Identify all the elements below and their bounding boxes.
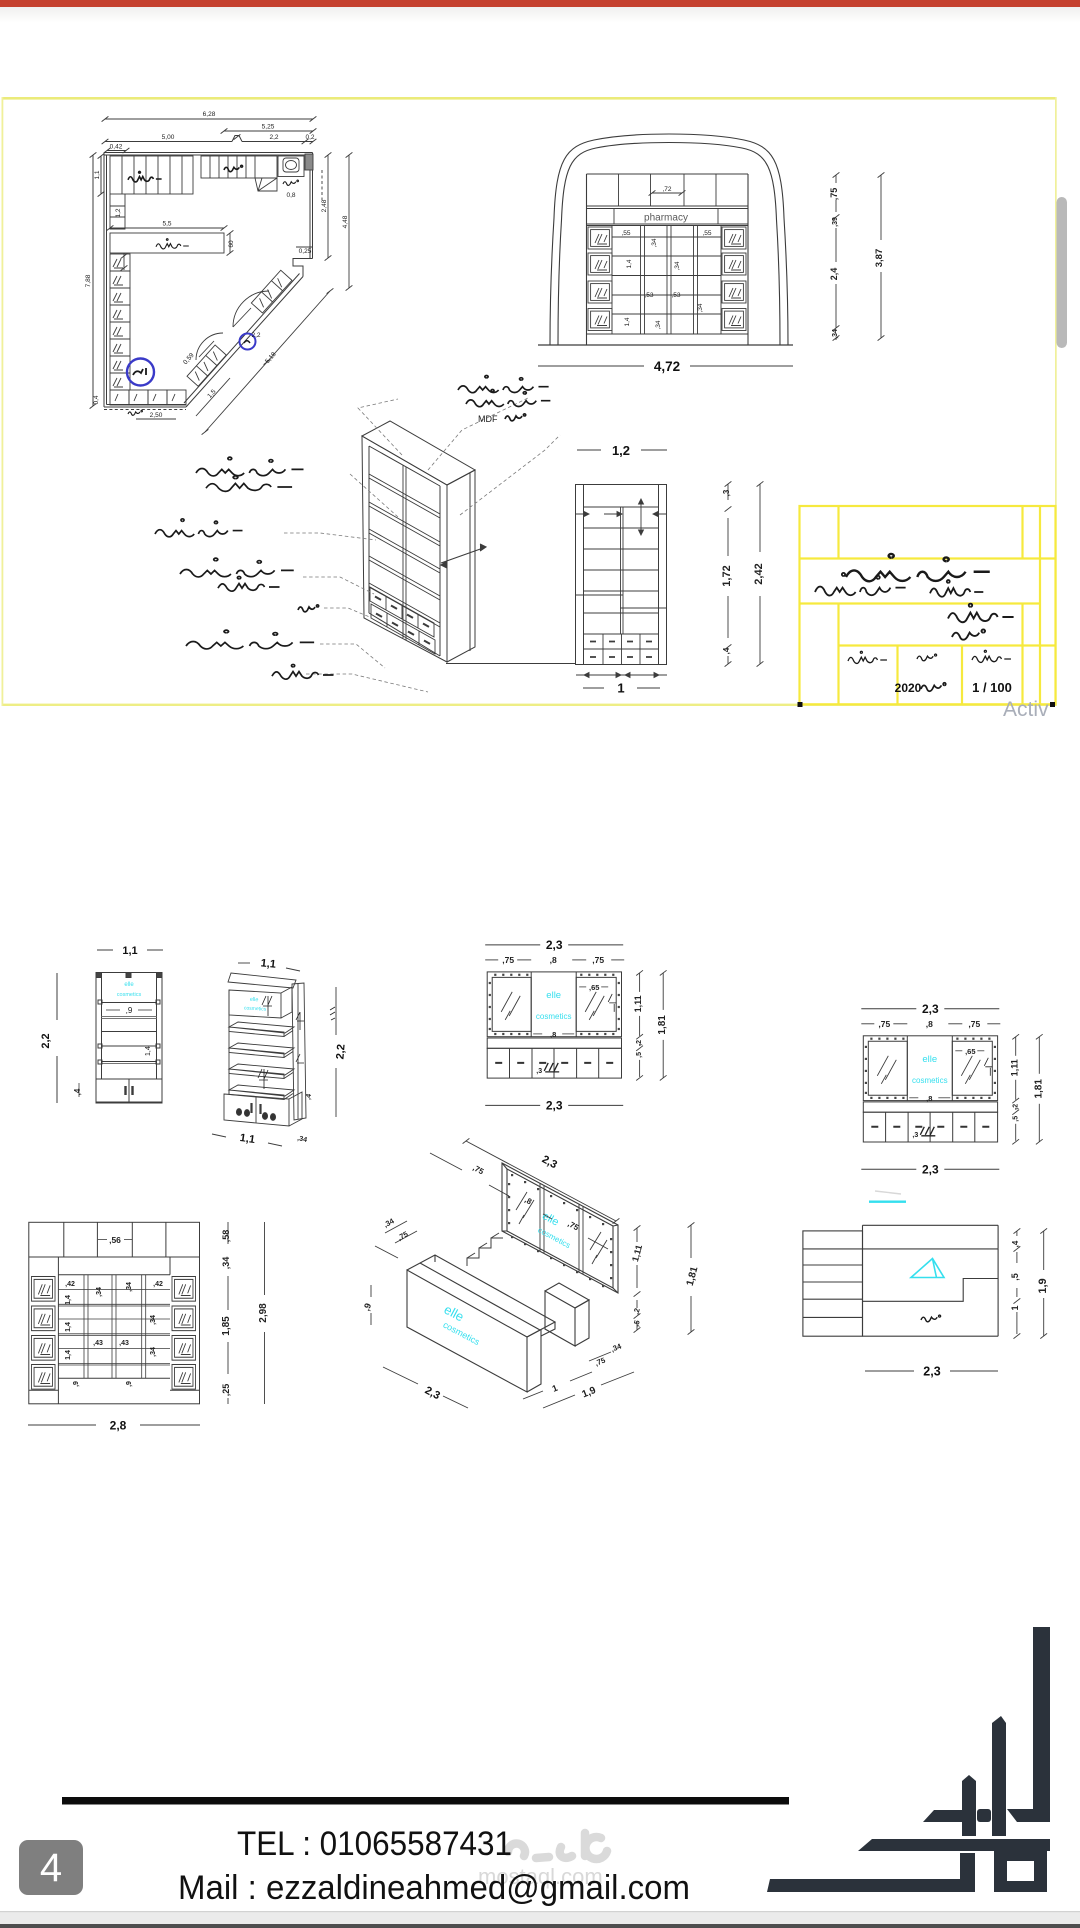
- svg-text:6,28: 6,28: [203, 111, 216, 118]
- svg-text:0,8: 0,8: [286, 192, 295, 199]
- svg-text:pharmacy: pharmacy: [644, 213, 688, 224]
- svg-text:elle: elle: [124, 982, 134, 988]
- svg-text:2,8: 2,8: [110, 1419, 127, 1433]
- svg-text:1,4: 1,4: [65, 1350, 72, 1360]
- svg-text:,9: ,9: [126, 1381, 133, 1387]
- svg-text:1,1: 1,1: [260, 957, 276, 971]
- svg-text:,9: ,9: [126, 1006, 133, 1015]
- svg-text:,34: ,34: [832, 329, 839, 339]
- svg-text:,5: ,5: [1010, 1273, 1020, 1281]
- svg-text:1,4: 1,4: [145, 1046, 152, 1056]
- svg-text:,34: ,34: [150, 1347, 157, 1357]
- svg-text:2,48: 2,48: [321, 199, 328, 212]
- svg-text:,53: ,53: [671, 292, 680, 299]
- svg-text:,3: ,3: [722, 489, 731, 496]
- svg-text:,4: ,4: [1011, 1240, 1020, 1247]
- svg-text:,43: ,43: [93, 1340, 103, 1347]
- svg-text:2,50: 2,50: [150, 412, 163, 419]
- svg-text:2,42: 2,42: [753, 563, 765, 584]
- svg-text:cosmetics: cosmetics: [244, 1005, 267, 1012]
- svg-text:1 / 100: 1 / 100: [972, 680, 1012, 695]
- svg-text:,9: ,9: [73, 1381, 80, 1387]
- svg-text:,55: ,55: [702, 230, 711, 237]
- svg-text:elle: elle: [250, 997, 259, 1003]
- svg-text:0,2: 0,2: [305, 134, 314, 141]
- svg-text:5,5: 5,5: [162, 221, 171, 228]
- svg-text:,53: ,53: [644, 292, 653, 299]
- svg-text:1: 1: [617, 681, 624, 696]
- svg-text:4,48: 4,48: [342, 215, 349, 228]
- svg-text:1,4: 1,4: [65, 1322, 72, 1332]
- svg-text:cosmetics: cosmetics: [117, 992, 142, 998]
- svg-text:1,2: 1,2: [612, 443, 630, 458]
- svg-text:,42: ,42: [65, 1281, 75, 1288]
- svg-text:4,72: 4,72: [654, 359, 680, 374]
- svg-text:2,2: 2,2: [334, 1044, 347, 1060]
- svg-text:,42: ,42: [153, 1281, 163, 1288]
- svg-text:1,9: 1,9: [1037, 1278, 1049, 1293]
- svg-text:,55: ,55: [621, 230, 630, 237]
- svg-text:,75: ,75: [829, 188, 839, 201]
- svg-text:,34: ,34: [96, 1287, 103, 1297]
- svg-text:,72: ,72: [662, 186, 671, 193]
- svg-text:0,4: 0,4: [93, 395, 100, 404]
- svg-text:1,72: 1,72: [721, 565, 733, 586]
- svg-text:,4: ,4: [722, 647, 731, 654]
- svg-text:60: 60: [228, 240, 235, 248]
- svg-text:0,25: 0,25: [299, 248, 312, 255]
- svg-text:,43: ,43: [119, 1340, 129, 1347]
- svg-text:,56: ,56: [109, 1235, 121, 1245]
- svg-text:Mail : ezzaldineahmed@gmail.co: Mail : ezzaldineahmed@gmail.com: [178, 1869, 690, 1907]
- svg-text:,4: ,4: [73, 1088, 82, 1095]
- svg-text:2,4: 2,4: [829, 268, 839, 281]
- svg-text:1,1: 1,1: [94, 170, 101, 179]
- svg-text:4: 4: [40, 1846, 62, 1890]
- svg-text:,34: ,34: [697, 303, 704, 312]
- svg-text:MDF: MDF: [478, 414, 498, 424]
- svg-text:1,2: 1,2: [115, 208, 122, 217]
- svg-text:,34: ,34: [126, 1282, 133, 1292]
- svg-text:2,2: 2,2: [40, 1033, 52, 1048]
- svg-text:,34: ,34: [651, 238, 658, 247]
- svg-text:5,25: 5,25: [262, 124, 275, 131]
- svg-text:1,4: 1,4: [624, 317, 631, 326]
- svg-text:,58: ,58: [221, 1230, 231, 1243]
- svg-text:1,1: 1,1: [122, 945, 137, 957]
- svg-text:,39: ,39: [832, 217, 839, 227]
- svg-text:,34: ,34: [150, 1315, 157, 1325]
- svg-text:2,98: 2,98: [258, 1303, 269, 1323]
- svg-text:1,4: 1,4: [626, 259, 633, 268]
- svg-text:2,3: 2,3: [923, 1365, 940, 1379]
- svg-text:7,88: 7,88: [85, 274, 92, 287]
- svg-text:5,00: 5,00: [162, 134, 175, 141]
- svg-text:0,42: 0,42: [110, 144, 123, 151]
- svg-text:1,1: 1,1: [239, 1132, 256, 1146]
- svg-text:,34: ,34: [674, 261, 681, 270]
- svg-text:2020: 2020: [895, 681, 922, 695]
- svg-text:2,2: 2,2: [269, 134, 278, 141]
- svg-text:1,4: 1,4: [65, 1295, 72, 1305]
- svg-text:3,87: 3,87: [874, 249, 885, 268]
- svg-text:1: 1: [1010, 1305, 1020, 1310]
- svg-text:,34: ,34: [221, 1257, 231, 1270]
- svg-text:,34: ,34: [655, 320, 662, 329]
- svg-text:1,85: 1,85: [221, 1316, 232, 1336]
- svg-text:TEL : 01065587431: TEL : 01065587431: [237, 1825, 512, 1863]
- svg-text:,25: ,25: [221, 1384, 231, 1397]
- svg-text:2,2: 2,2: [251, 332, 260, 339]
- svg-text:Activ: Activ: [1003, 698, 1049, 721]
